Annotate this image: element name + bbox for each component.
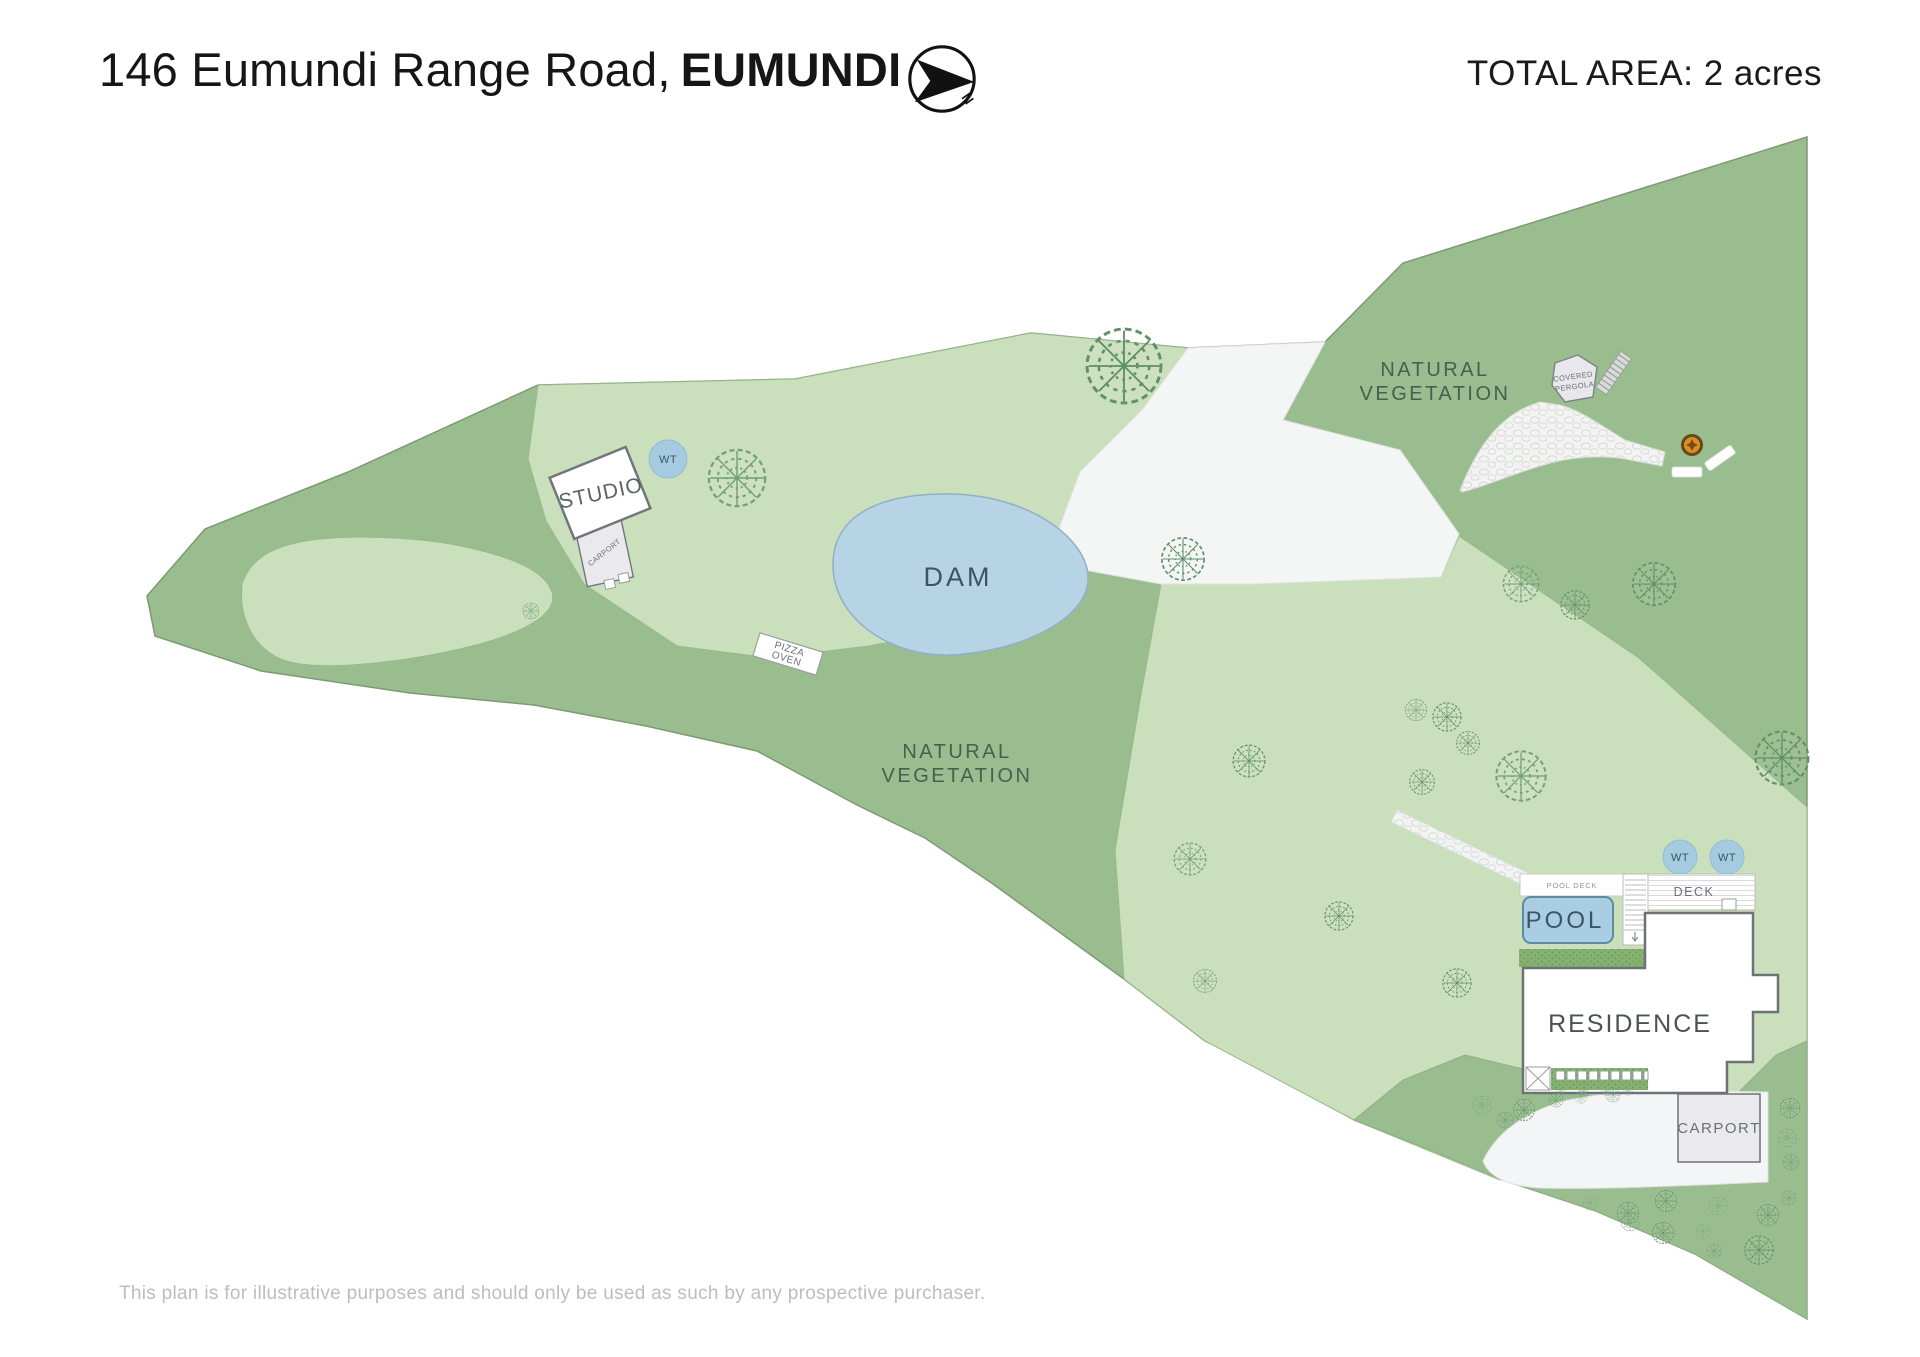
page-title: 146 Eumundi Range Road,EUMUNDI xyxy=(99,42,901,97)
dam-label: DAM xyxy=(924,562,993,592)
tree-icon xyxy=(709,450,765,506)
tree-icon xyxy=(1557,1086,1566,1095)
water-tank-studio-label: WT xyxy=(659,454,677,466)
tree-icon xyxy=(1549,1093,1563,1107)
natural-vegetation-label-center-line2: VEGETATION xyxy=(882,765,1033,787)
tree-icon xyxy=(1174,843,1206,875)
tree-icon xyxy=(1405,699,1426,720)
tree-icon xyxy=(1709,1197,1727,1215)
tree-icon xyxy=(1756,732,1809,785)
tree-icon xyxy=(1233,745,1265,777)
tree-icon xyxy=(1580,1087,1589,1096)
disclaimer-text: This plan is for illustrative purposes a… xyxy=(119,1283,985,1305)
total-area-label: TOTAL AREA: 2 acres xyxy=(1467,54,1822,94)
tree-icon xyxy=(523,603,539,619)
natural-vegetation-label-ne-line1: NATURAL xyxy=(1380,359,1489,381)
tree-icon xyxy=(1457,732,1480,755)
natural-vegetation-label-center-line1: NATURAL xyxy=(902,741,1011,763)
tree-icon xyxy=(1443,969,1471,997)
carport-label: CARPORT xyxy=(1677,1120,1761,1137)
tree-icon xyxy=(1513,1099,1534,1120)
tree-icon xyxy=(1602,1087,1611,1096)
tree-icon xyxy=(1655,1190,1676,1211)
tree-icon xyxy=(1783,1154,1799,1170)
tree-icon xyxy=(1162,538,1204,580)
tree-icon xyxy=(1621,1213,1639,1231)
north-arrow-icon: N xyxy=(903,40,981,118)
tree-icon xyxy=(1778,1129,1796,1147)
natural-vegetation-label-ne-line2: VEGETATION xyxy=(1360,383,1511,405)
tree-icon xyxy=(1757,1204,1778,1225)
tree-icon xyxy=(1624,1087,1633,1096)
tree-icon xyxy=(1496,751,1545,800)
tree-icon xyxy=(1503,566,1538,601)
tree-icon xyxy=(1707,1244,1721,1258)
tree-icon xyxy=(1087,329,1161,403)
water-tank-2-label: WT xyxy=(1718,852,1736,864)
water-tank-1-label: WT xyxy=(1671,852,1689,864)
tree-icon xyxy=(1696,1224,1710,1238)
deck-label: DECK xyxy=(1674,885,1715,899)
pool-label: POOL xyxy=(1526,907,1605,934)
tree-icon xyxy=(1433,703,1461,731)
pool-hedge xyxy=(1519,949,1646,967)
tree-icon xyxy=(1583,1196,1597,1210)
site-plan-map: DAM NATURAL VEGETATION NATURAL VEGETATIO… xyxy=(0,0,1920,1357)
tree-icon xyxy=(1561,591,1589,619)
tree-icon xyxy=(1194,970,1217,993)
address-text: 146 Eumundi Range Road, xyxy=(99,43,671,96)
tree-icon xyxy=(1325,902,1353,930)
pool-deck-label: POOL DECK xyxy=(1547,881,1598,890)
tree-icon xyxy=(1780,1098,1799,1117)
tree-icon xyxy=(1745,1236,1773,1264)
tree-icon xyxy=(1410,770,1435,795)
address-suburb: EUMUNDI xyxy=(681,43,902,96)
fire-pit-icon xyxy=(1683,436,1702,455)
tree-icon xyxy=(1473,1096,1491,1114)
residence-label: RESIDENCE xyxy=(1548,1010,1712,1038)
tree-icon xyxy=(1497,1112,1513,1128)
residence-garden-strip xyxy=(1526,1067,1648,1090)
bench xyxy=(1672,467,1702,477)
tree-icon xyxy=(1652,1222,1673,1243)
site-plan-page: DAM NATURAL VEGETATION NATURAL VEGETATIO… xyxy=(0,0,1920,1357)
tree-icon xyxy=(1782,1191,1796,1205)
tree-icon xyxy=(1633,563,1675,605)
